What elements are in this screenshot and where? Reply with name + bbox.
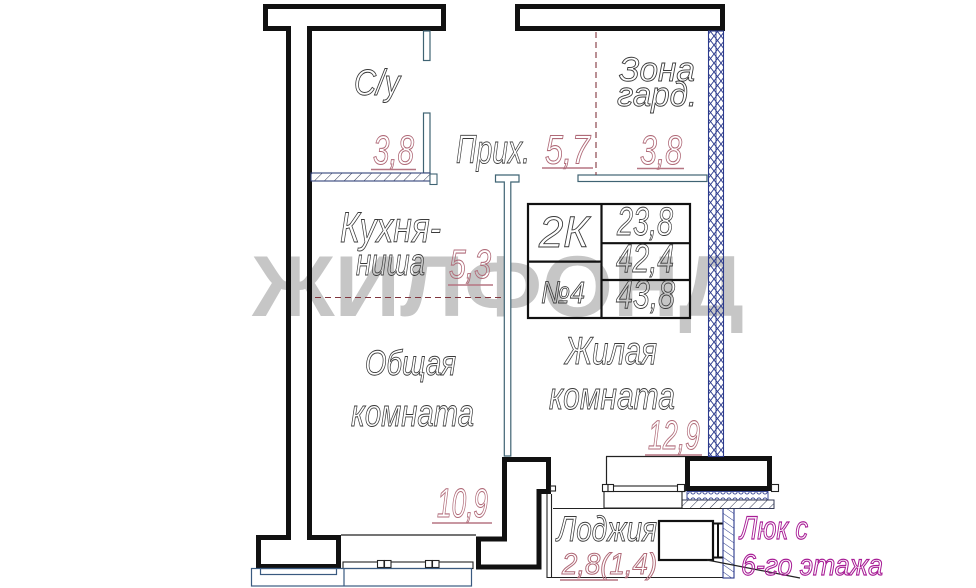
svg-text:2,8(1,4): 2,8(1,4) <box>561 548 657 581</box>
svg-text:Общая: Общая <box>365 344 456 383</box>
svg-text:Жилая: Жилая <box>563 330 657 373</box>
svg-text:гард.: гард. <box>617 76 697 114</box>
svg-text:Прих.: Прих. <box>456 128 530 172</box>
svg-text:2К: 2К <box>538 208 591 257</box>
svg-text:№4: №4 <box>541 275 585 310</box>
svg-text:10,9: 10,9 <box>437 480 488 526</box>
svg-text:комната: комната <box>351 393 474 435</box>
svg-text:Лоджия: Лоджия <box>555 510 657 549</box>
svg-text:ниша: ниша <box>356 242 425 284</box>
svg-text:12,9: 12,9 <box>648 412 700 458</box>
svg-text:5,7: 5,7 <box>545 127 592 173</box>
svg-text:3,8: 3,8 <box>640 127 682 173</box>
svg-text:6-го этажа: 6-го этажа <box>741 549 883 582</box>
svg-text:5,3: 5,3 <box>449 241 491 287</box>
svg-text:3,8: 3,8 <box>373 127 414 173</box>
svg-text:С/у: С/у <box>354 62 402 103</box>
svg-text:43,8: 43,8 <box>616 273 676 317</box>
svg-text:Люк с: Люк с <box>738 510 808 546</box>
